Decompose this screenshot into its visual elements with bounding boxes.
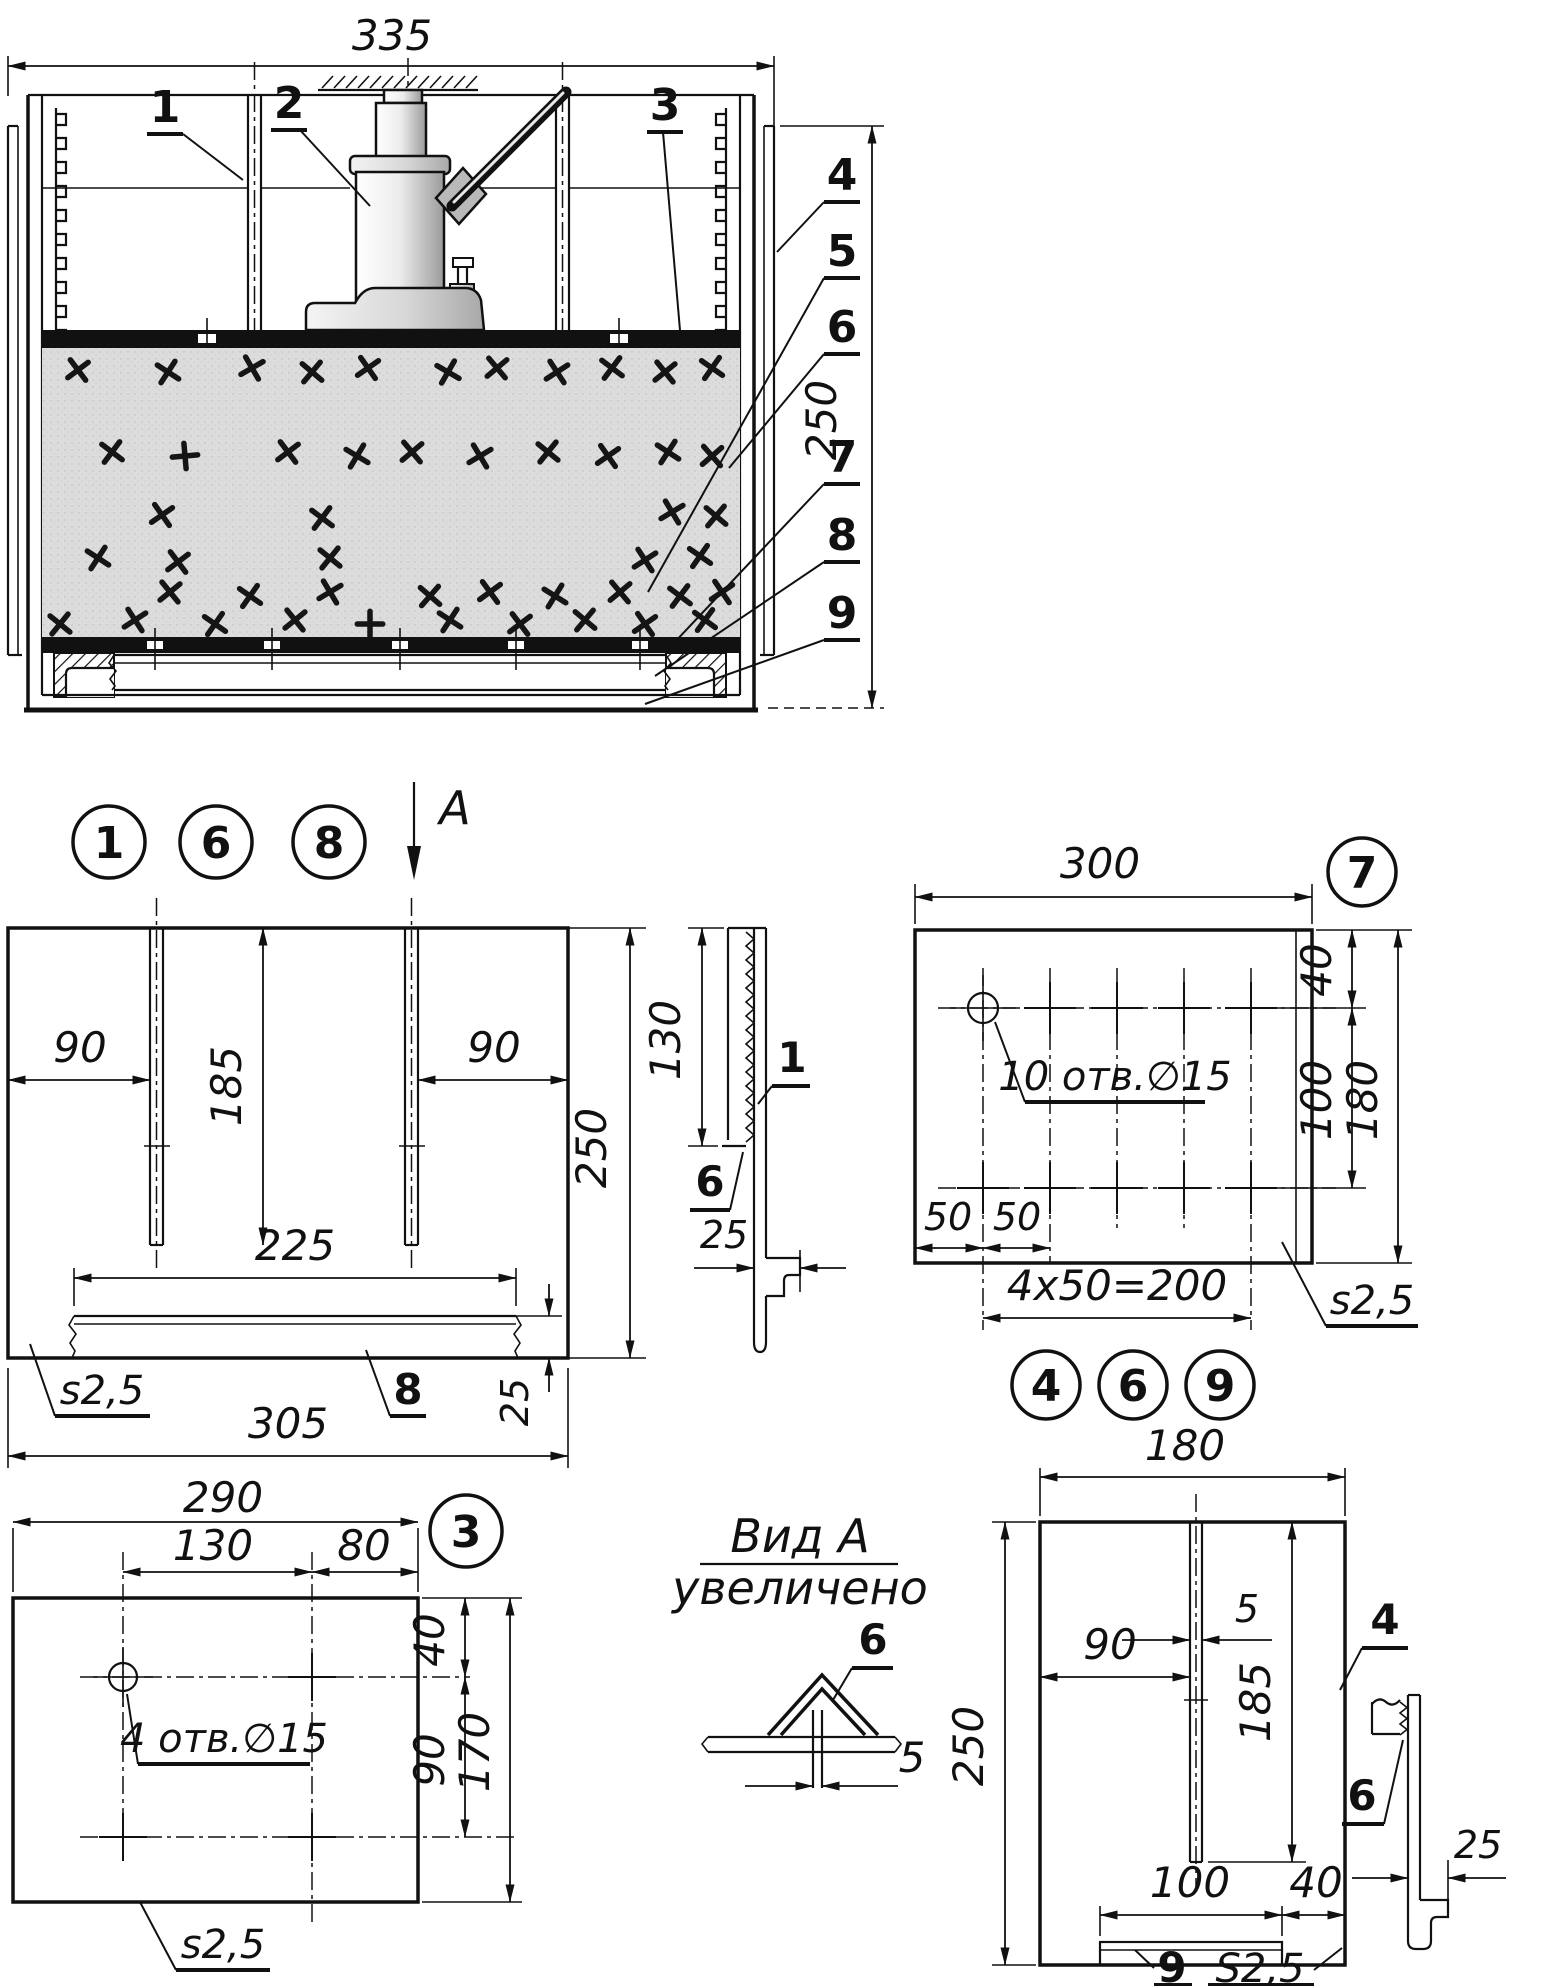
note-s25-168: s2,5 (60, 1368, 144, 1414)
callout-5: 5 (827, 226, 858, 277)
dim-40-469: 40 (1289, 1858, 1342, 1907)
note-s25-469: S2,5 (1215, 1946, 1304, 1986)
balloon-7: 7 (1347, 848, 1378, 899)
jack-plunger-cap (453, 258, 473, 267)
note-s25-7: s2,5 (1330, 1278, 1414, 1324)
note-holes-3: 4 отв.∅15 (120, 1716, 328, 1762)
dim-80-3: 80 (337, 1521, 390, 1570)
dim-25-469: 25 (1454, 1823, 1502, 1867)
view-a-title: Вид А (730, 1509, 869, 1563)
dim-90-right: 90 (467, 1023, 520, 1072)
callout-4: 4 (827, 150, 858, 201)
label-4: 4 (1370, 1595, 1399, 1644)
balloons-469: 4 6 9 (1012, 1351, 1254, 1419)
dim-40-7: 40 (1292, 943, 1341, 996)
dim-305: 305 (248, 1399, 328, 1448)
balloon-9: 9 (1205, 1361, 1236, 1412)
dim-90-469: 90 (1083, 1620, 1136, 1669)
dim-100-469: 100 (1150, 1858, 1230, 1907)
press-drawing: 335 (0, 0, 1543, 1986)
dim-90-left: 90 (53, 1023, 106, 1072)
dim-185-469: 185 (1231, 1662, 1280, 1742)
dim-290: 290 (183, 1473, 263, 1522)
dim-pitch: 4x50=200 (1007, 1261, 1227, 1310)
label-1-side: 1 (777, 1033, 806, 1082)
dim-250-168: 250 (567, 1108, 616, 1188)
callout-8: 8 (827, 510, 858, 561)
dim-170: 170 (450, 1712, 499, 1792)
dim-300: 300 (1060, 839, 1140, 888)
dim-180-7: 180 (1338, 1060, 1387, 1140)
dim-40-3: 40 (405, 1613, 454, 1666)
dim-5-rib: 5 (1235, 1587, 1259, 1631)
balloon-4: 4 (1031, 1361, 1062, 1412)
base-bracket-left (54, 653, 114, 697)
balloon-3: 3 (451, 1507, 482, 1558)
dim-100-7: 100 (1292, 1060, 1341, 1140)
note-holes-7: 10 отв.∅15 (998, 1054, 1231, 1100)
callout-1: 1 (150, 82, 181, 133)
dim-180-469: 180 (1145, 1421, 1225, 1470)
note-s25-3: s2,5 (181, 1922, 265, 1968)
label-6-side: 6 (695, 1157, 724, 1206)
dim-50b: 50 (993, 1195, 1041, 1239)
balloon-6: 6 (201, 818, 232, 869)
callout-6: 6 (827, 302, 858, 353)
dim-90-3: 90 (405, 1733, 454, 1786)
callout-3: 3 (650, 80, 681, 131)
dim-25-side: 25 (700, 1213, 748, 1257)
balloon-6b: 6 (1118, 1361, 1149, 1412)
balloon-1: 1 (94, 818, 125, 869)
dim-250-469: 250 (944, 1706, 993, 1786)
drawing-sheet: 335 (0, 0, 1543, 1986)
dim-335: 335 (352, 11, 432, 60)
dim-130-3: 130 (173, 1521, 253, 1570)
jack-body (356, 172, 444, 300)
label-6-viewa: 6 (858, 1615, 887, 1664)
view-a-subtitle: увеличено (670, 1561, 928, 1615)
view-a-letter: A (436, 781, 470, 835)
dim-50a: 50 (924, 1195, 972, 1239)
jack-screw-cap (384, 90, 422, 103)
jack-piston (376, 103, 426, 159)
label-6-side469: 6 (1347, 1771, 1376, 1820)
label-8: 8 (393, 1365, 422, 1414)
callout-7: 7 (827, 432, 858, 483)
base-bracket-right (666, 653, 726, 697)
dim-185: 185 (202, 1046, 251, 1126)
dim-5-rivet: 5 (899, 1733, 926, 1782)
dim-130: 130 (641, 1000, 690, 1080)
compressed-material (42, 348, 740, 637)
callout-2: 2 (274, 78, 305, 129)
callout-9: 9 (827, 588, 858, 639)
dim-225: 225 (255, 1221, 335, 1270)
label-9: 9 (1157, 1943, 1186, 1986)
dim-25-bar: 25 (493, 1378, 537, 1426)
balloon-8: 8 (314, 818, 345, 869)
